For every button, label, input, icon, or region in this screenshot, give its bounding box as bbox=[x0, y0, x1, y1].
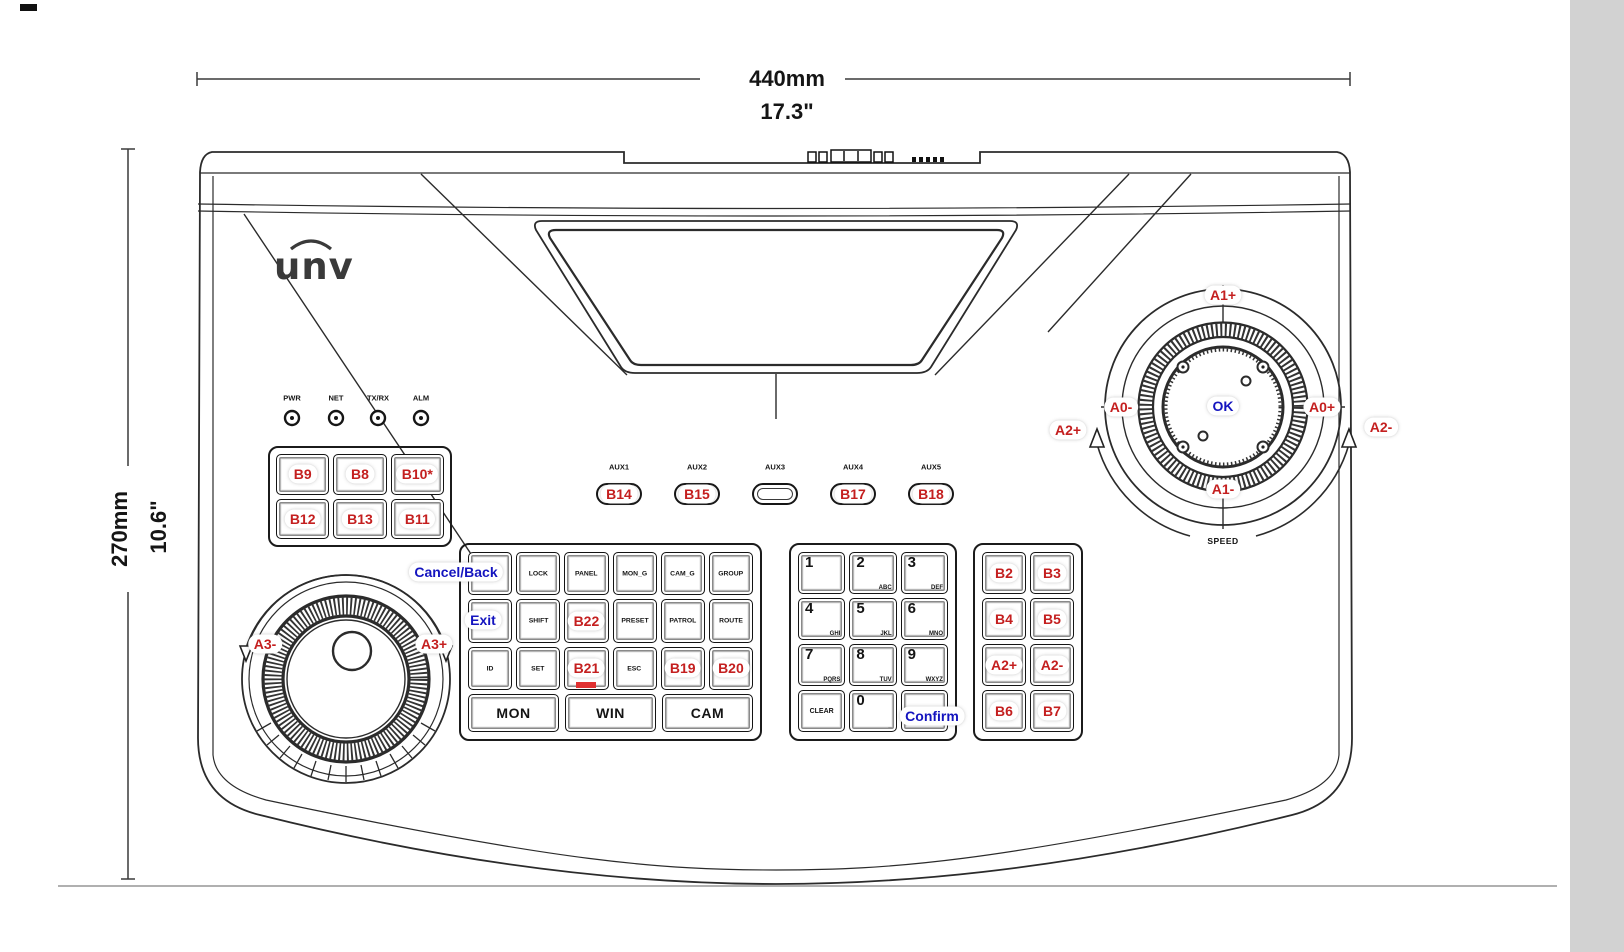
key-group[interactable]: GROUP bbox=[709, 552, 753, 595]
dim-height-inch: 10.6" bbox=[146, 500, 172, 553]
callout-b19: B19 bbox=[666, 660, 700, 676]
key-panel[interactable]: PANEL bbox=[564, 552, 608, 595]
key-cam-g[interactable]: CAM_G bbox=[661, 552, 705, 595]
key-preset[interactable]: PRESET bbox=[613, 599, 657, 642]
callout-ok[interactable]: OK bbox=[1209, 398, 1238, 414]
key-6[interactable]: 6MNO bbox=[901, 598, 948, 640]
b21-highlight bbox=[576, 682, 596, 688]
callout-b8: B8 bbox=[347, 466, 373, 482]
key-set[interactable]: SET bbox=[516, 647, 560, 690]
callout-b2: B2 bbox=[991, 565, 1017, 581]
key-2[interactable]: 2ABC bbox=[849, 552, 896, 594]
callout-b22: B22 bbox=[570, 613, 604, 629]
dim-height-mm: 270mm bbox=[107, 491, 133, 567]
speed-label: SPEED bbox=[1207, 536, 1238, 546]
led-label-txrx: TX/RX bbox=[367, 394, 389, 403]
callout-a0-minus: A0- bbox=[1106, 399, 1137, 415]
callout-a0-plus: A0+ bbox=[1305, 399, 1339, 415]
key-b22[interactable]: B22 bbox=[564, 599, 608, 642]
key-b13[interactable]: B13 bbox=[333, 499, 386, 540]
aux4-label: AUX4 bbox=[843, 463, 863, 472]
callout-a2-plus-key: A2+ bbox=[987, 657, 1021, 673]
aux1-button[interactable]: B14 bbox=[596, 483, 642, 505]
aux2-label: AUX2 bbox=[687, 463, 707, 472]
callout-b12: B12 bbox=[286, 511, 320, 527]
keyboard-dimension-diagram: 440mm 17.3" 270mm 10.6" unv PWR NET TX/R… bbox=[0, 0, 1624, 952]
dim-width-inch: 17.3" bbox=[760, 99, 813, 125]
callout-a2-minus: A2- bbox=[1366, 419, 1397, 435]
key-clear[interactable]: CLEAR bbox=[798, 690, 845, 732]
callout-b13: B13 bbox=[343, 511, 377, 527]
callout-b3: B3 bbox=[1039, 565, 1065, 581]
callout-a2-plus: A2+ bbox=[1051, 422, 1085, 438]
callout-b17: B17 bbox=[836, 486, 870, 502]
callout-cancel-back: Cancel/Back bbox=[410, 564, 501, 580]
key-4[interactable]: 4GHI bbox=[798, 598, 845, 640]
device-line-art bbox=[0, 0, 1624, 952]
key-b4[interactable]: B4 bbox=[982, 598, 1026, 640]
aux3-label: AUX3 bbox=[765, 463, 785, 472]
callout-b10: B10* bbox=[398, 466, 437, 482]
key-b6[interactable]: B6 bbox=[982, 690, 1026, 732]
aux4-button[interactable]: B17 bbox=[830, 483, 876, 505]
key-b10[interactable]: B10* bbox=[391, 454, 444, 495]
aux3-button[interactable] bbox=[752, 483, 798, 505]
key-3[interactable]: 3DEF bbox=[901, 552, 948, 594]
callout-b20: B20 bbox=[714, 660, 748, 676]
key-5[interactable]: 5JKL bbox=[849, 598, 896, 640]
callout-b14: B14 bbox=[602, 486, 636, 502]
unv-logo: unv bbox=[274, 248, 354, 285]
key-b12[interactable]: B12 bbox=[276, 499, 329, 540]
key-mon[interactable]: MON bbox=[468, 694, 559, 732]
callout-a1-minus: A1- bbox=[1208, 481, 1239, 497]
led-label-pwr: PWR bbox=[283, 394, 301, 403]
callout-b4: B4 bbox=[991, 611, 1017, 627]
key-b8[interactable]: B8 bbox=[333, 454, 386, 495]
jog-wheel bbox=[240, 575, 452, 783]
key-win[interactable]: WIN bbox=[565, 694, 656, 732]
callout-b11: B11 bbox=[401, 511, 434, 527]
aux5-label: AUX5 bbox=[921, 463, 941, 472]
dim-width-mm: 440mm bbox=[749, 66, 825, 92]
key-shift[interactable]: SHIFT bbox=[516, 599, 560, 642]
key-7[interactable]: 7PQRS bbox=[798, 644, 845, 686]
key-b9[interactable]: B9 bbox=[276, 454, 329, 495]
key-a2-plus[interactable]: A2+ bbox=[982, 644, 1026, 686]
key-a2-minus[interactable]: A2- bbox=[1030, 644, 1074, 686]
key-1[interactable]: 1 bbox=[798, 552, 845, 594]
key-b7[interactable]: B7 bbox=[1030, 690, 1074, 732]
right-keypad-panel: B2 B3 B4 B5 A2+ A2- B6 B7 bbox=[973, 543, 1083, 741]
callout-b15: B15 bbox=[680, 486, 714, 502]
callout-a2-minus-key: A2- bbox=[1037, 657, 1068, 673]
callout-b6: B6 bbox=[991, 703, 1017, 719]
aux1-label: AUX1 bbox=[609, 463, 629, 472]
callout-b5: B5 bbox=[1039, 611, 1065, 627]
key-patrol[interactable]: PATROL bbox=[661, 599, 705, 642]
main-keypad-panel: LOCK PANEL MON_G CAM_G GROUP SHIFT B22 P… bbox=[459, 543, 762, 741]
key-route[interactable]: ROUTE bbox=[709, 599, 753, 642]
key-id[interactable]: ID bbox=[468, 647, 512, 690]
key-b2[interactable]: B2 bbox=[982, 552, 1026, 594]
callout-b7: B7 bbox=[1039, 703, 1065, 719]
key-8[interactable]: 8TUV bbox=[849, 644, 896, 686]
key-lock[interactable]: LOCK bbox=[516, 552, 560, 595]
key-b5[interactable]: B5 bbox=[1030, 598, 1074, 640]
callout-a1-plus: A1+ bbox=[1206, 287, 1240, 303]
key-b21[interactable]: B21 bbox=[564, 647, 608, 690]
callout-a3-minus: A3- bbox=[250, 636, 281, 652]
key-mon-g[interactable]: MON_G bbox=[613, 552, 657, 595]
callout-a3-plus: A3+ bbox=[417, 636, 451, 652]
key-esc[interactable]: ESC bbox=[613, 647, 657, 690]
callout-b18: B18 bbox=[914, 486, 948, 502]
callout-confirm: Confirm bbox=[901, 708, 963, 724]
callout-exit: Exit bbox=[466, 612, 500, 628]
callout-b21: B21 bbox=[570, 660, 604, 676]
key-b11[interactable]: B11 bbox=[391, 499, 444, 540]
aux2-button[interactable]: B15 bbox=[674, 483, 720, 505]
aux5-button[interactable]: B18 bbox=[908, 483, 954, 505]
led-label-alm: ALM bbox=[413, 394, 429, 403]
led-label-net: NET bbox=[329, 394, 344, 403]
left-keypad-panel: B9 B8 B10* B12 B13 B11 bbox=[268, 446, 452, 547]
key-b20[interactable]: B20 bbox=[709, 647, 753, 690]
key-cam[interactable]: CAM bbox=[662, 694, 753, 732]
key-b3[interactable]: B3 bbox=[1030, 552, 1074, 594]
key-0[interactable]: 0_ bbox=[849, 690, 896, 732]
key-9[interactable]: 9WXYZ bbox=[901, 644, 948, 686]
callout-b9: B9 bbox=[290, 466, 316, 482]
key-b19[interactable]: B19 bbox=[661, 647, 705, 690]
